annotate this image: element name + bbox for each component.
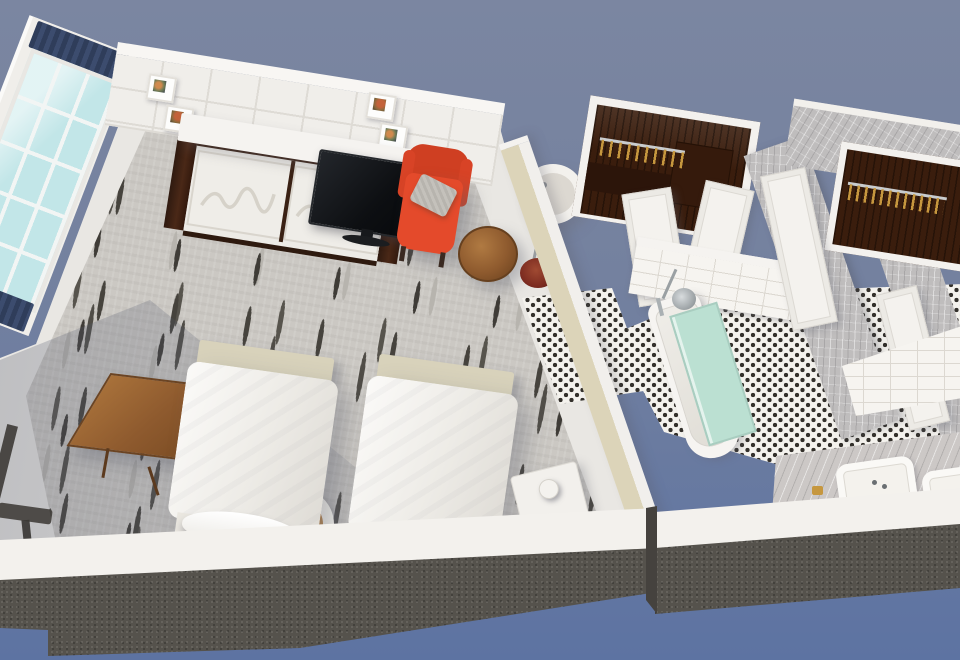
nightstand-lamp (537, 477, 561, 501)
second-closet-interior (824, 141, 960, 272)
hotel-room-3d-render (0, 0, 960, 660)
round-side-table (458, 226, 518, 282)
soap-dish (812, 486, 823, 495)
faucet (872, 480, 877, 485)
armchair-leg (438, 252, 445, 268)
faucet (882, 484, 887, 489)
armchair-leg (399, 246, 406, 262)
rain-shower-head (672, 288, 696, 310)
duvet (167, 360, 340, 538)
